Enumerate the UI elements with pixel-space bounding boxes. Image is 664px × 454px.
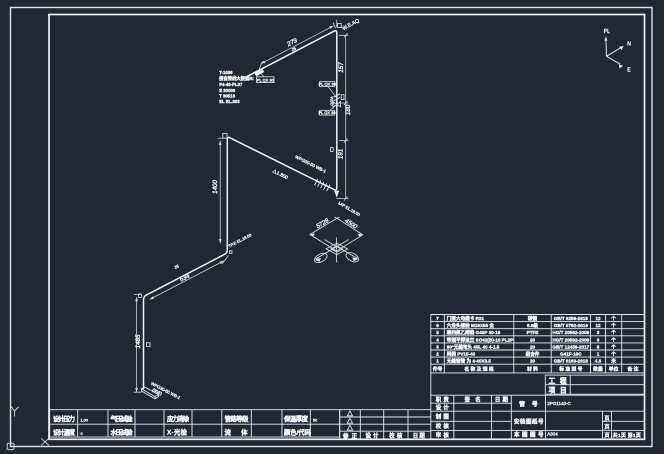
svg-text:5: 5: [436, 330, 439, 335]
svg-text:个: 个: [610, 322, 616, 328]
svg-text:PTFE: PTFE: [527, 330, 539, 335]
svg-text:4.3: 4.3: [595, 359, 602, 364]
svg-text:1485: 1485: [135, 334, 142, 348]
svg-text:六角头螺栓 M16X55 全: 六角头螺栓 M16X55 全: [447, 322, 495, 329]
svg-text:设 计: 设 计: [436, 403, 450, 411]
svg-text:管路等级: 管路等级: [225, 414, 250, 423]
svg-text:T 30518: T 30518: [219, 94, 235, 99]
svg-text:个: 个: [610, 329, 616, 335]
svg-text:P4-40-PL07: P4-40-PL07: [219, 82, 243, 87]
svg-text:E 30000: E 30000: [219, 88, 236, 93]
svg-text:管 号: 管 号: [519, 400, 538, 408]
svg-text:项 目: 项 目: [549, 386, 567, 395]
svg-text:A304: A304: [547, 431, 558, 436]
svg-text:页: 页: [605, 424, 610, 431]
svg-text:PL QX 30: PL QX 30: [318, 110, 336, 115]
svg-text:单位: 单位: [609, 366, 619, 373]
svg-text:保温厚度: 保温厚度: [283, 414, 309, 423]
svg-text:2: 2: [436, 352, 439, 357]
svg-text:共1页 第1页: 共1页 第1页: [613, 432, 641, 439]
svg-text:X-光检: X-光检: [167, 427, 188, 436]
svg-text:20: 20: [530, 359, 536, 364]
svg-text:日期: 日期: [495, 395, 509, 403]
svg-text:4: 4: [436, 337, 439, 342]
svg-text:GB/T 12459-2017: GB/T 12459-2017: [552, 344, 589, 349]
svg-text:3: 3: [597, 337, 600, 342]
svg-text:数量: 数量: [593, 366, 603, 373]
svg-text:Q25A: Q25A: [330, 96, 334, 106]
svg-text:PL: PL: [604, 29, 610, 35]
svg-text:制 图: 制 图: [436, 412, 450, 420]
svg-text:设计温度: 设计温度: [53, 427, 76, 436]
svg-text:米: 米: [611, 358, 616, 365]
svg-text:校 核: 校 核: [436, 422, 450, 430]
svg-text:3: 3: [436, 344, 439, 349]
svg-text:12: 12: [595, 316, 601, 321]
svg-text:材 料: 材 料: [526, 366, 538, 373]
svg-text:页: 页: [605, 415, 610, 422]
svg-text:应力消除: 应力消除: [167, 414, 190, 423]
svg-text:闸阀 PV15-40: 闸阀 PV15-40: [447, 351, 476, 358]
svg-text:个: 个: [610, 315, 616, 321]
svg-text:N: N: [627, 41, 631, 47]
svg-text:页: 页: [605, 432, 610, 439]
svg-text:6: 6: [436, 323, 439, 328]
svg-text:HG/T 20592-2009: HG/T 20592-2009: [552, 330, 589, 335]
svg-text:PL QX 30: PL QX 30: [257, 77, 275, 82]
svg-text:8.8级: 8.8级: [527, 322, 538, 329]
svg-text:校核: 校核: [389, 432, 403, 440]
svg-text:50: 50: [313, 418, 317, 422]
svg-text:流 体: 流 体: [225, 427, 249, 436]
svg-text:职 责: 职 责: [436, 396, 450, 404]
svg-text:标 准 型 号: 标 准 型 号: [558, 366, 582, 373]
svg-text:无缝钢管 为 4-40X3.5: 无缝钢管 为 4-40X3.5: [446, 358, 492, 365]
svg-text:PL QX 30: PL QX 30: [319, 82, 337, 87]
svg-text:90°无缝弯头 45L 40 4-1.5: 90°无缝弯头 45L 40 4-1.5: [447, 343, 500, 350]
svg-text:GB/T 8259-2015: GB/T 8259-2015: [554, 316, 589, 321]
svg-text:组合件: 组合件: [526, 351, 540, 358]
svg-text:191: 191: [337, 149, 344, 159]
svg-text:名 称 及 规 格: 名 称 及 规 格: [464, 366, 494, 373]
svg-text:180: 180: [345, 104, 352, 115]
svg-text:门型大电缆卡 R31: 门型大电缆卡 R31: [447, 315, 485, 322]
svg-text:个: 个: [610, 336, 616, 342]
svg-text:7: 7: [436, 316, 439, 321]
svg-text:GB/T 5782-2016: GB/T 5782-2016: [554, 323, 589, 328]
svg-text:1400: 1400: [212, 180, 219, 194]
svg-text:1.00: 1.00: [81, 418, 88, 422]
svg-text:1: 1: [436, 359, 439, 364]
svg-text:12: 12: [595, 323, 601, 328]
svg-text:件号: 件号: [433, 366, 443, 373]
svg-text:碳钢: 碳钢: [528, 315, 538, 322]
svg-text:20: 20: [530, 344, 536, 349]
svg-text:2PG1140-C: 2PG1140-C: [547, 401, 571, 406]
svg-text:HG/T 20592-2009: HG/T 20592-2009: [552, 337, 589, 342]
svg-text:审 核: 审 核: [436, 431, 450, 439]
svg-text:1: 1: [597, 352, 600, 357]
svg-text:T-1006: T-1006: [219, 70, 233, 75]
svg-text:个: 个: [610, 351, 616, 357]
svg-text:气压试验: 气压试验: [110, 414, 134, 423]
svg-text:G41F-16C: G41F-16C: [560, 352, 582, 357]
svg-text:安装图纸号: 安装图纸号: [514, 417, 544, 425]
svg-text:聚四氟乙烯垫 G40P 40-16: 聚四氟乙烯垫 G40P 40-16: [446, 329, 501, 336]
svg-text:8: 8: [597, 344, 600, 349]
svg-text:20: 20: [530, 337, 536, 342]
svg-text:颜色/代码: 颜色/代码: [284, 427, 312, 436]
svg-text:水压试验: 水压试验: [111, 427, 134, 436]
svg-text:备 注: 备 注: [627, 366, 639, 373]
svg-text:GB/T 8163-2018: GB/T 8163-2018: [554, 359, 589, 364]
svg-text:个: 个: [610, 343, 616, 349]
svg-text:设计: 设计: [366, 432, 380, 440]
svg-text:带颈平焊法兰 SO42(B)-16 PL2P: 带颈平焊法兰 SO42(B)-16 PL2P: [447, 336, 513, 343]
svg-text:设计压力: 设计压力: [53, 414, 75, 423]
svg-text:EL EL.603: EL EL.603: [219, 99, 240, 104]
svg-text:工 程: 工 程: [549, 376, 567, 385]
svg-text:日期: 日期: [413, 432, 426, 440]
svg-text:签 名: 签 名: [464, 395, 481, 403]
svg-text:157: 157: [338, 62, 345, 73]
svg-text:3: 3: [597, 330, 600, 335]
svg-text:0: 0: [81, 432, 83, 436]
